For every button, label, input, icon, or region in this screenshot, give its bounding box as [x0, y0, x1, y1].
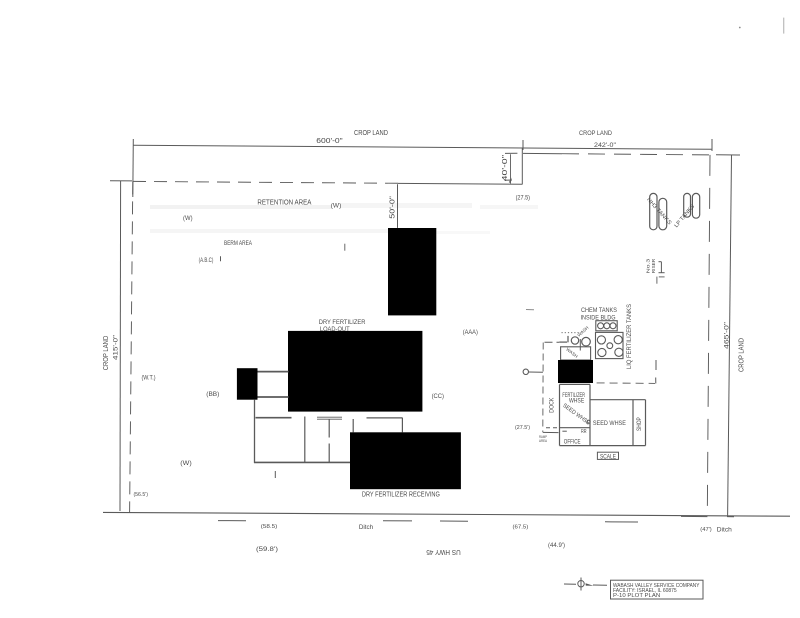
svg-text:(27.5'): (27.5'): [515, 425, 530, 431]
svg-text:CROP LAND: CROP LAND: [354, 130, 388, 137]
svg-text:DRY FERTILIZER RECEIVING: DRY FERTILIZER RECEIVING: [362, 491, 440, 498]
svg-text:LIQ FERTILIZER TANKS: LIQ FERTILIZER TANKS: [626, 303, 633, 369]
svg-text:CROP LAND: CROP LAND: [103, 336, 110, 371]
svg-text:OFFICE: OFFICE: [564, 439, 581, 445]
svg-text:(A.B.C): (A.B.C): [199, 258, 214, 264]
svg-text:SEED WHSE: SEED WHSE: [561, 403, 591, 427]
svg-text:RR: RR: [581, 429, 587, 435]
svg-text:(47'): (47'): [700, 527, 712, 533]
svg-text:(W): (W): [180, 460, 191, 467]
svg-text:CHEM TANKS: CHEM TANKS: [581, 308, 617, 314]
svg-text:P-10 PLOT PLAN: P-10 PLOT PLAN: [613, 593, 660, 599]
svg-text:SCALE: SCALE: [600, 454, 616, 460]
svg-text:AREA: AREA: [539, 439, 547, 443]
svg-text:(44.9'): (44.9'): [548, 543, 565, 549]
svg-text:600'-0": 600'-0": [316, 138, 343, 145]
svg-text:50'-0": 50'-0": [390, 195, 397, 218]
svg-text:RETENTION AREA: RETENTION AREA: [257, 199, 311, 206]
svg-text:WASH: WASH: [565, 347, 579, 359]
svg-text:(27.5): (27.5): [516, 196, 530, 202]
svg-text:(67.5): (67.5): [513, 525, 529, 531]
svg-text:CROP LAND: CROP LAND: [579, 130, 612, 137]
svg-text:(W.T.): (W.T.): [142, 375, 156, 381]
svg-text:RISER: RISER: [651, 258, 657, 273]
svg-text:Ditch: Ditch: [359, 525, 373, 531]
svg-text:415'-0": 415'-0": [112, 334, 119, 360]
svg-text:DOCK: DOCK: [549, 397, 556, 413]
svg-text:(CC): (CC): [432, 393, 444, 400]
svg-text:(58.5): (58.5): [261, 524, 278, 530]
svg-text:(W): (W): [331, 202, 342, 209]
svg-text:DRY FERTILIZER: DRY FERTILIZER: [319, 319, 366, 326]
svg-text:No.3: No.3: [645, 258, 651, 273]
svg-text:SEED WHSE: SEED WHSE: [593, 420, 626, 427]
svg-text:SHOP: SHOP: [637, 417, 643, 431]
svg-text:(W): (W): [183, 215, 193, 222]
svg-text:(59.8'): (59.8'): [256, 547, 278, 553]
svg-text:(BB): (BB): [206, 392, 219, 398]
svg-text:WHSE: WHSE: [569, 399, 584, 405]
svg-text:US HWY 45: US HWY 45: [426, 548, 461, 555]
svg-text:Ditch: Ditch: [717, 527, 732, 533]
svg-text:242'-0": 242'-0": [594, 142, 617, 149]
svg-text:40'-0": 40'-0": [502, 154, 509, 181]
svg-text:(56.5'): (56.5'): [133, 492, 148, 498]
svg-text:CROP LAND: CROP LAND: [739, 338, 746, 372]
svg-text:BERM AREA: BERM AREA: [224, 240, 253, 247]
svg-text:(AAA): (AAA): [463, 330, 478, 336]
svg-text:WASH: WASH: [576, 325, 589, 338]
svg-text:465'-0": 465'-0": [724, 321, 731, 349]
